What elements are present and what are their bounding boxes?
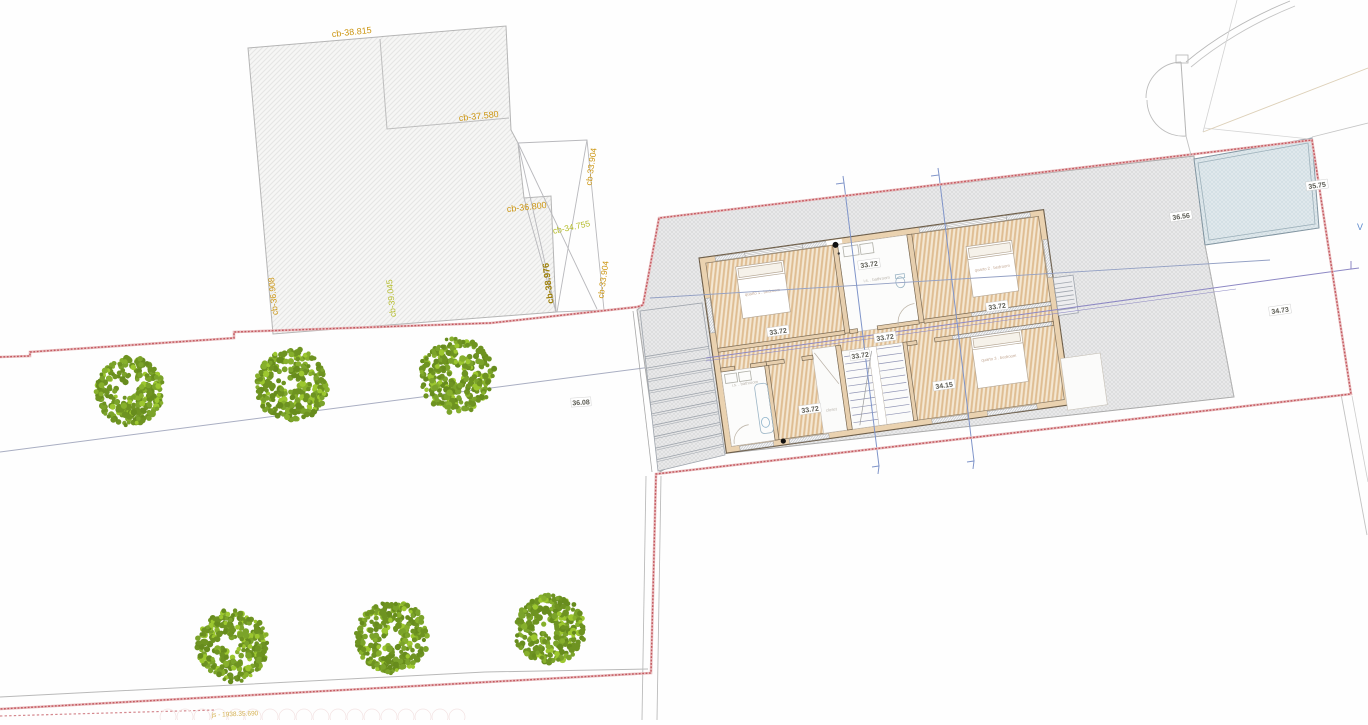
svg-text:36.08: 36.08: [572, 399, 590, 407]
svg-text:V: V: [1357, 222, 1363, 232]
